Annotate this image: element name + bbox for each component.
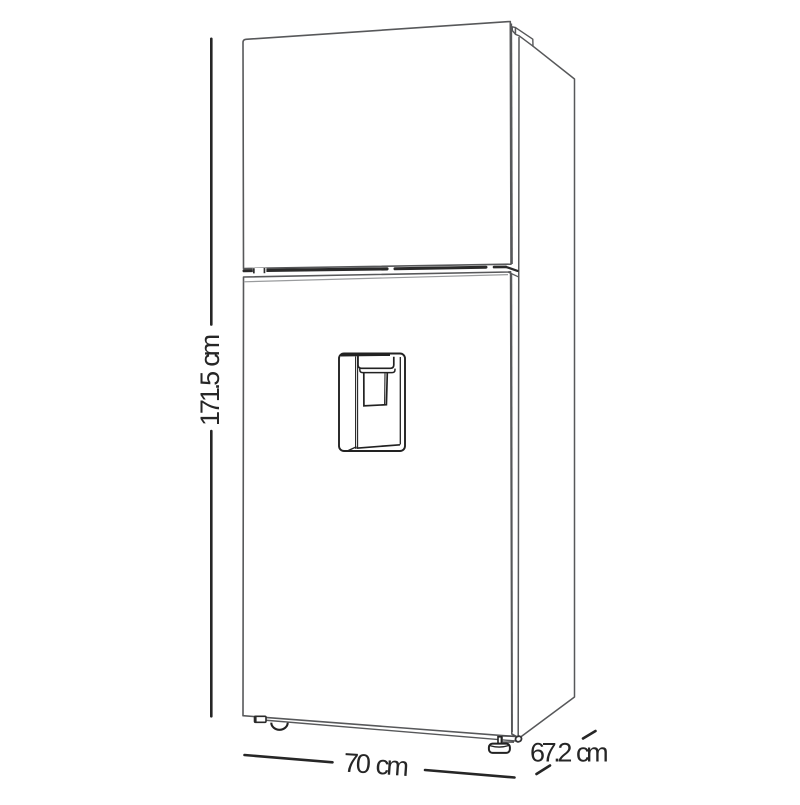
svg-text:67.2 cm: 67.2 cm [530, 737, 607, 767]
svg-text:70 cm: 70 cm [343, 748, 409, 782]
svg-text:171.5 cm: 171.5 cm [195, 335, 225, 426]
